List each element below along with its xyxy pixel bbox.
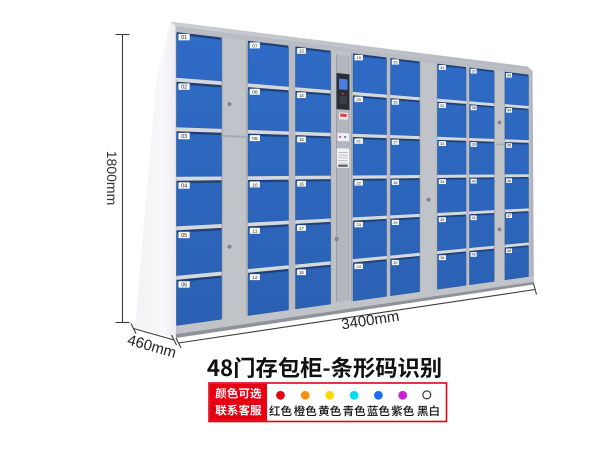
- svg-text:45: 45: [507, 144, 511, 148]
- svg-text:19: 19: [356, 55, 361, 60]
- svg-text:04: 04: [181, 184, 187, 190]
- svg-text:43: 43: [507, 73, 511, 77]
- svg-text:41: 41: [472, 216, 476, 220]
- svg-text:12: 12: [252, 275, 258, 281]
- svg-text:33: 33: [440, 142, 444, 146]
- svg-text:03: 03: [181, 134, 187, 140]
- svg-text:05: 05: [181, 233, 187, 239]
- svg-text:31: 31: [440, 66, 444, 70]
- svg-text:21: 21: [356, 139, 361, 144]
- svg-text:16: 16: [299, 181, 304, 186]
- svg-text:28: 28: [393, 181, 397, 185]
- svg-text:10: 10: [252, 182, 258, 188]
- svg-text:37: 37: [472, 69, 476, 73]
- svg-text:02: 02: [181, 85, 187, 91]
- svg-text:06: 06: [181, 283, 187, 289]
- svg-text:14: 14: [299, 93, 304, 98]
- svg-text:36: 36: [440, 256, 444, 260]
- svg-text:17: 17: [299, 226, 304, 231]
- svg-text:30: 30: [393, 261, 397, 265]
- svg-text:38: 38: [472, 106, 476, 110]
- svg-text:35: 35: [440, 218, 444, 222]
- svg-text:32: 32: [440, 104, 444, 108]
- svg-text:23: 23: [356, 222, 361, 227]
- svg-text:44: 44: [507, 109, 511, 113]
- svg-text:25: 25: [393, 60, 397, 64]
- svg-text:11: 11: [252, 229, 257, 235]
- svg-text:40: 40: [472, 179, 476, 183]
- svg-text:39: 39: [472, 143, 476, 147]
- svg-text:24: 24: [356, 264, 361, 269]
- svg-text:46: 46: [507, 179, 511, 183]
- svg-text:15: 15: [299, 137, 304, 142]
- svg-text:13: 13: [299, 49, 304, 54]
- svg-text:42: 42: [472, 253, 476, 257]
- svg-text:01: 01: [181, 35, 187, 41]
- svg-text:48: 48: [507, 249, 511, 253]
- svg-text:26: 26: [393, 101, 397, 105]
- svg-text:29: 29: [393, 221, 397, 225]
- svg-text:07: 07: [252, 43, 258, 49]
- svg-text:47: 47: [507, 214, 511, 218]
- svg-text:34: 34: [440, 180, 444, 184]
- svg-text:08: 08: [252, 90, 258, 96]
- svg-text:18: 18: [299, 270, 304, 275]
- svg-text:22: 22: [356, 180, 361, 185]
- svg-text:20: 20: [356, 97, 361, 102]
- svg-text:09: 09: [252, 136, 258, 142]
- svg-text:1800mm: 1800mm: [104, 151, 120, 205]
- svg-text:27: 27: [393, 141, 397, 145]
